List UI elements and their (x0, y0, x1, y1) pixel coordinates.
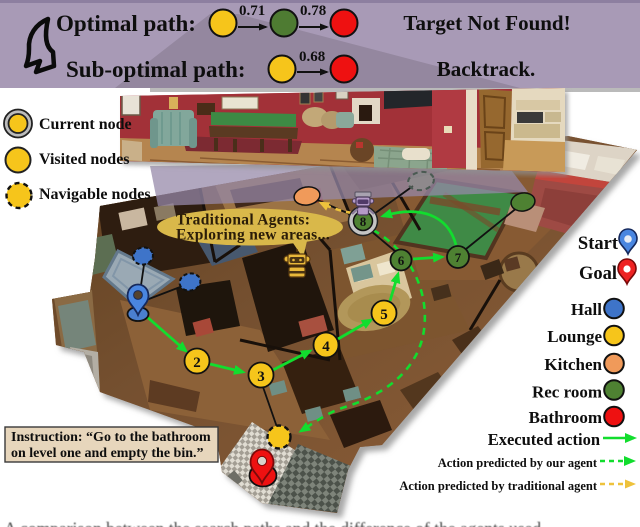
svg-text:6: 6 (398, 253, 405, 268)
svg-text:Lounge: Lounge (547, 327, 602, 346)
svg-text:Instruction: “Go to the bathro: Instruction: “Go to the bathroom (11, 430, 211, 445)
svg-text:Optimal path:: Optimal path: (56, 11, 196, 36)
svg-text:0.71: 0.71 (239, 3, 265, 19)
svg-text:Rec room: Rec room (532, 383, 602, 402)
svg-text:7: 7 (455, 250, 462, 265)
svg-text:Hall: Hall (571, 300, 602, 319)
svg-text:4: 4 (322, 339, 330, 355)
svg-text:Start: Start (578, 234, 619, 254)
svg-text:Exploring new areas...: Exploring new areas... (176, 227, 330, 244)
svg-text:Action predicted by our agent: Action predicted by our agent (438, 456, 598, 470)
svg-text:Target Not Found!: Target Not Found! (403, 11, 570, 35)
svg-text:Current node: Current node (39, 116, 132, 133)
svg-text:Goal: Goal (579, 264, 617, 284)
svg-text:3: 3 (257, 369, 265, 385)
svg-text:0.68: 0.68 (299, 49, 325, 65)
svg-text:Visited nodes: Visited nodes (39, 151, 130, 168)
svg-text:Backtrack.: Backtrack. (437, 57, 536, 81)
svg-text:Bathroom: Bathroom (529, 408, 602, 427)
svg-text:8: 8 (360, 214, 367, 229)
svg-text:2: 2 (193, 355, 201, 371)
svg-text:A comparison between the searc: A comparison between the search paths an… (4, 519, 541, 527)
svg-text:on level one and empty the bin: on level one and empty the bin.” (11, 446, 204, 461)
svg-text:Kitchen: Kitchen (544, 355, 602, 374)
svg-text:Executed action: Executed action (488, 430, 600, 449)
svg-text:5: 5 (380, 307, 388, 323)
svg-text:Action predicted by traditiona: Action predicted by traditional agent (399, 479, 598, 493)
svg-text:0.78: 0.78 (300, 3, 326, 19)
svg-text:Sub-optimal path:: Sub-optimal path: (66, 57, 246, 82)
svg-text:Navigable nodes: Navigable nodes (39, 186, 151, 203)
